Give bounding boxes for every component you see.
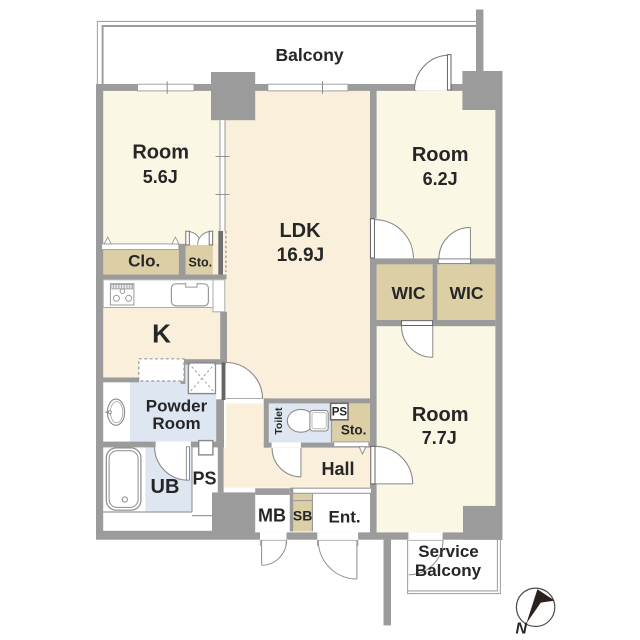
svg-text:UB: UB [151,476,180,498]
svg-text:Room: Room [132,142,189,164]
svg-text:Powder: Powder [146,397,208,416]
svg-text:WIC: WIC [449,283,483,303]
svg-text:Room: Room [412,144,469,166]
svg-text:Balcony: Balcony [276,45,344,65]
svg-text:7.7J: 7.7J [422,428,457,448]
svg-text:16.9J: 16.9J [277,245,325,266]
svg-text:LDK: LDK [279,220,321,242]
svg-text:MB: MB [258,506,286,526]
svg-text:Balcony: Balcony [415,561,482,580]
svg-text:Hall: Hall [321,459,354,479]
svg-text:Room: Room [152,414,200,433]
svg-text:WIC: WIC [391,283,425,303]
svg-text:N: N [516,621,528,638]
svg-text:Sto.: Sto. [341,423,367,438]
svg-text:Service: Service [418,542,479,561]
svg-text:6.2J: 6.2J [423,169,458,189]
svg-text:Sto.: Sto. [188,256,212,270]
svg-text:K: K [152,318,171,348]
svg-text:Room: Room [412,404,469,426]
svg-text:SB: SB [293,508,312,524]
svg-text:Ent.: Ent. [329,508,361,527]
svg-text:PS: PS [192,468,216,488]
svg-text:Clo.: Clo. [128,251,160,270]
svg-text:5.6J: 5.6J [143,167,178,187]
svg-text:PS: PS [332,407,348,419]
svg-text:Toilet: Toilet [273,407,285,435]
